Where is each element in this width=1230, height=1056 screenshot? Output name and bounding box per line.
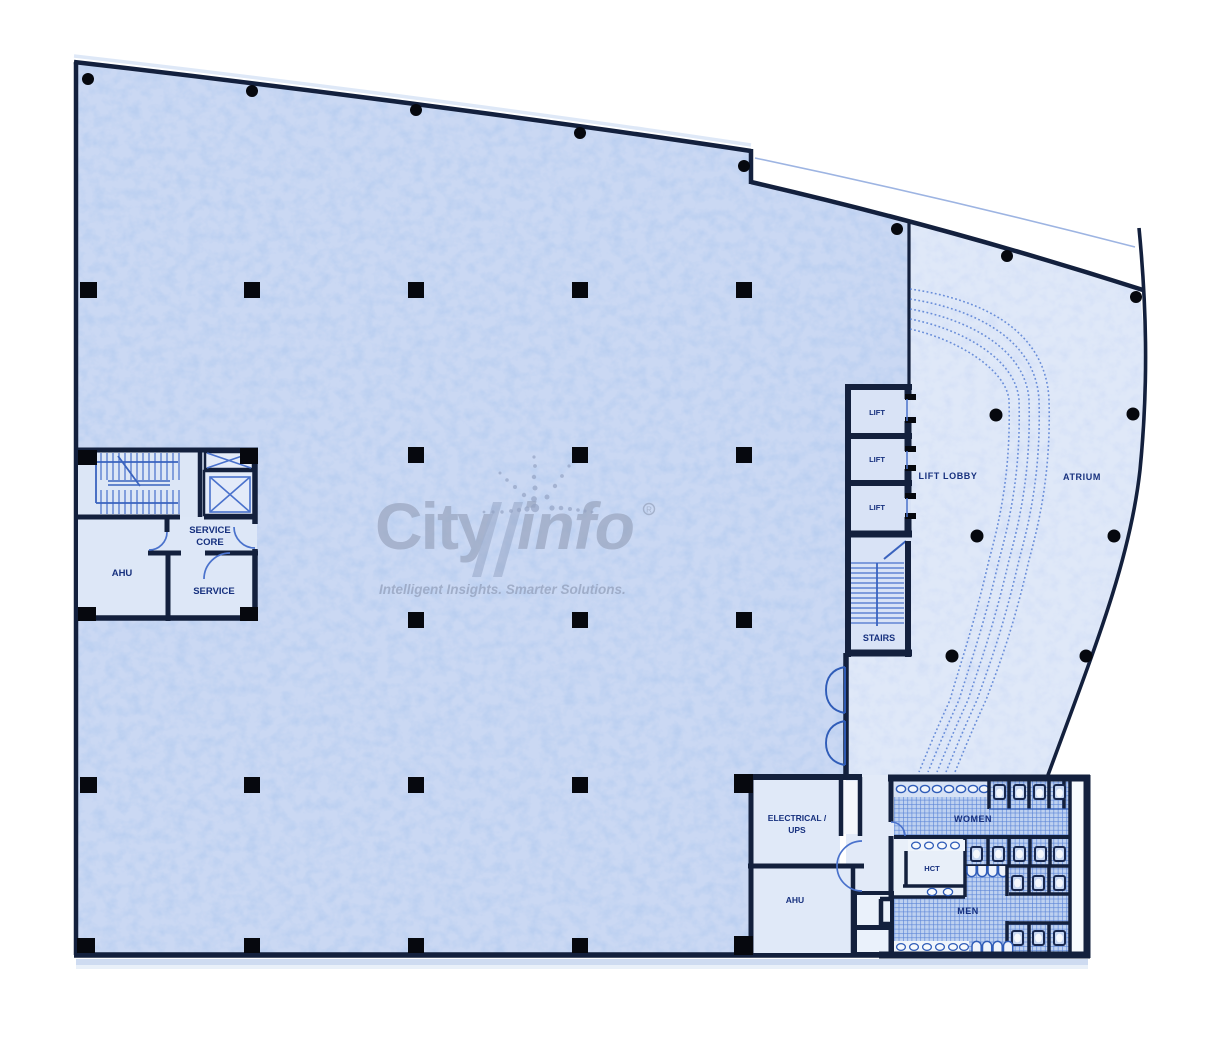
svg-text:ATRIUM: ATRIUM [1063,472,1101,482]
svg-text:UPS: UPS [788,825,806,835]
svg-text:SERVICE: SERVICE [193,586,235,597]
svg-text:R: R [646,506,652,515]
svg-text:AHU: AHU [112,568,133,579]
svg-text:Intelligent Insights. Smarter: Intelligent Insights. Smarter Solutions. [379,582,626,597]
svg-text:ELECTRICAL /: ELECTRICAL / [768,813,827,823]
svg-text:LIFT: LIFT [869,455,885,464]
svg-text:STAIRS: STAIRS [863,633,895,643]
svg-text:AHU: AHU [786,895,804,905]
svg-text:LIFT: LIFT [869,408,885,417]
svg-text:WOMEN: WOMEN [954,814,992,824]
svg-text:HCT: HCT [924,864,940,873]
svg-text:LIFT: LIFT [869,503,885,512]
svg-text:MEN: MEN [957,906,979,916]
svg-text:SERVICE: SERVICE [189,525,231,536]
svg-text:LIFT LOBBY: LIFT LOBBY [919,471,978,481]
svg-text:City: City [375,489,494,563]
svg-text:CORE: CORE [196,537,223,548]
